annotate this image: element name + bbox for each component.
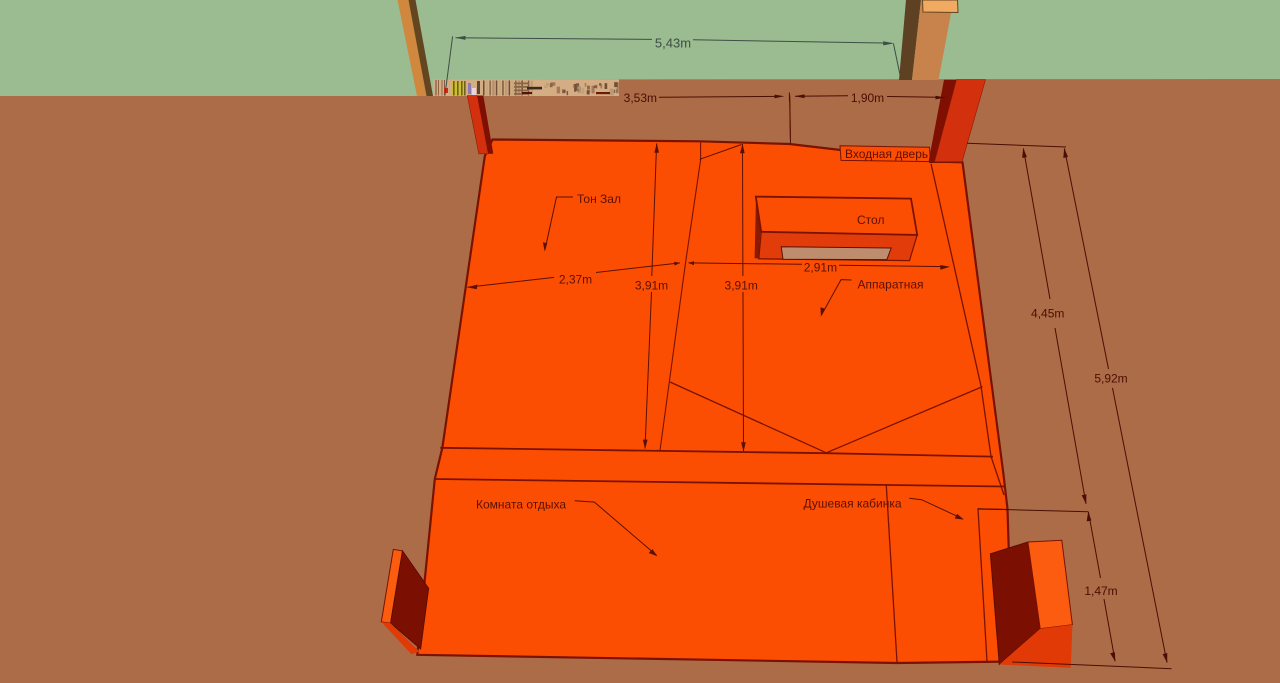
svg-text:5,92m: 5,92m (1094, 372, 1127, 386)
svg-text:3,91m: 3,91m (725, 278, 758, 292)
svg-text:Аппаратная: Аппаратная (858, 278, 924, 292)
svg-text:Душевая кабинка: Душевая кабинка (804, 496, 902, 510)
svg-text:4,45m: 4,45m (1031, 307, 1064, 321)
svg-text:Тон Зал: Тон Зал (577, 192, 621, 206)
svg-text:5,43m: 5,43m (655, 36, 691, 51)
svg-text:3,91m: 3,91m (635, 278, 668, 292)
svg-text:Комната отдыха: Комната отдыха (476, 497, 566, 511)
svg-text:1,47m: 1,47m (1084, 584, 1117, 598)
svg-text:Входная дверь: Входная дверь (845, 147, 928, 161)
svg-text:Стол: Стол (857, 213, 884, 227)
svg-text:3,53m: 3,53m (624, 91, 657, 105)
svg-text:2,91m: 2,91m (804, 260, 837, 274)
svg-text:2,37m: 2,37m (559, 272, 592, 286)
svg-text:1,90m: 1,90m (851, 91, 884, 105)
